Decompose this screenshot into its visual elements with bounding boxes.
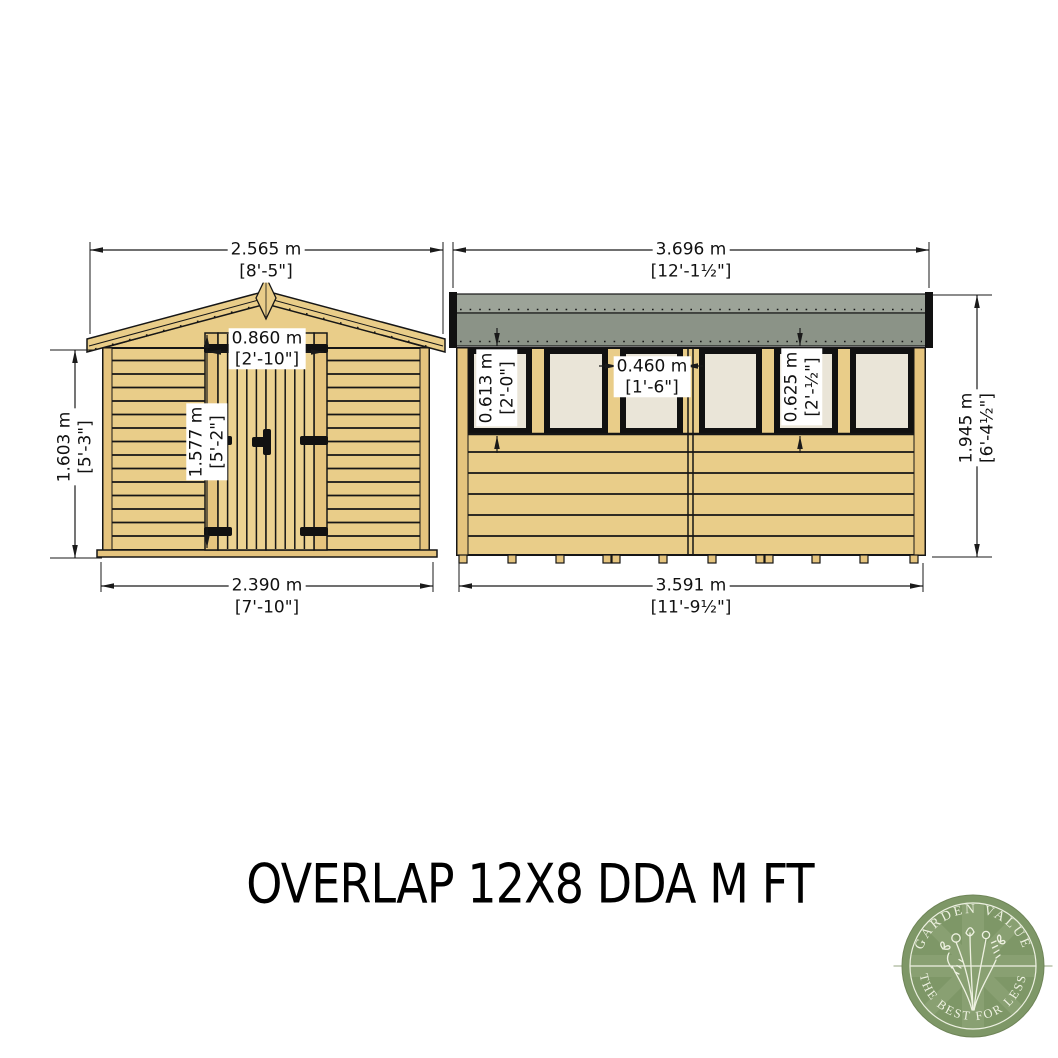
side-window-width-label: 0.460 m [1'-6"] <box>614 356 691 397</box>
side-base-width-imperial: [11'-9½"] <box>648 598 735 619</box>
side-roof-endcap-right <box>925 292 933 348</box>
side-window-height-left-label: 0.613 m [2'-0"] <box>476 350 517 427</box>
side-elevation-drawing <box>449 242 992 592</box>
front-corner-trim-left <box>103 348 112 550</box>
front-wall-height-label: 1.603 m [5'-3"] <box>54 409 95 486</box>
side-roof-endcap-left <box>449 292 457 348</box>
front-floor <box>97 550 437 557</box>
floor-bearers <box>459 555 918 563</box>
technical-drawing <box>0 0 1058 700</box>
side-corner-trim-left <box>457 348 468 555</box>
side-roof-width-metric: 3.696 m <box>653 240 730 261</box>
front-base-width-metric: 2.390 m <box>229 576 306 597</box>
side-corner-trim-right <box>914 348 925 555</box>
front-roof-width-imperial: [8'-5"] <box>236 262 296 283</box>
product-title: OVERLAP 12X8 DDA M FT <box>246 853 813 916</box>
front-door-height-label: 1.577 m [5'-2"] <box>186 404 227 481</box>
garden-value-logo: GARDEN VALUE THE BEST FOR LESS <box>893 886 1053 1046</box>
front-corner-trim-right <box>420 348 429 550</box>
front-elevation-drawing <box>50 242 445 592</box>
garden-value-logo-badge: GARDEN VALUE THE BEST FOR LESS <box>893 886 1053 1046</box>
shed-dimension-sheet: 2.565 m [8'-5"] 1.603 m [5'-3"] 0.860 m … <box>0 0 1058 1058</box>
side-roof-width-imperial: [12'-1½"] <box>648 262 735 283</box>
front-door-width-label: 0.860 m [2'-10"] <box>229 328 306 369</box>
side-base-width-metric: 3.591 m <box>653 576 730 597</box>
side-ridge-height-label: 1.945 m [6'-4½"] <box>956 390 997 467</box>
front-roof-width-metric: 2.565 m <box>228 240 305 261</box>
front-base-width-imperial: [7'-10"] <box>232 598 302 619</box>
side-window-height-right-label: 0.625 m [2'-½"] <box>781 349 822 426</box>
